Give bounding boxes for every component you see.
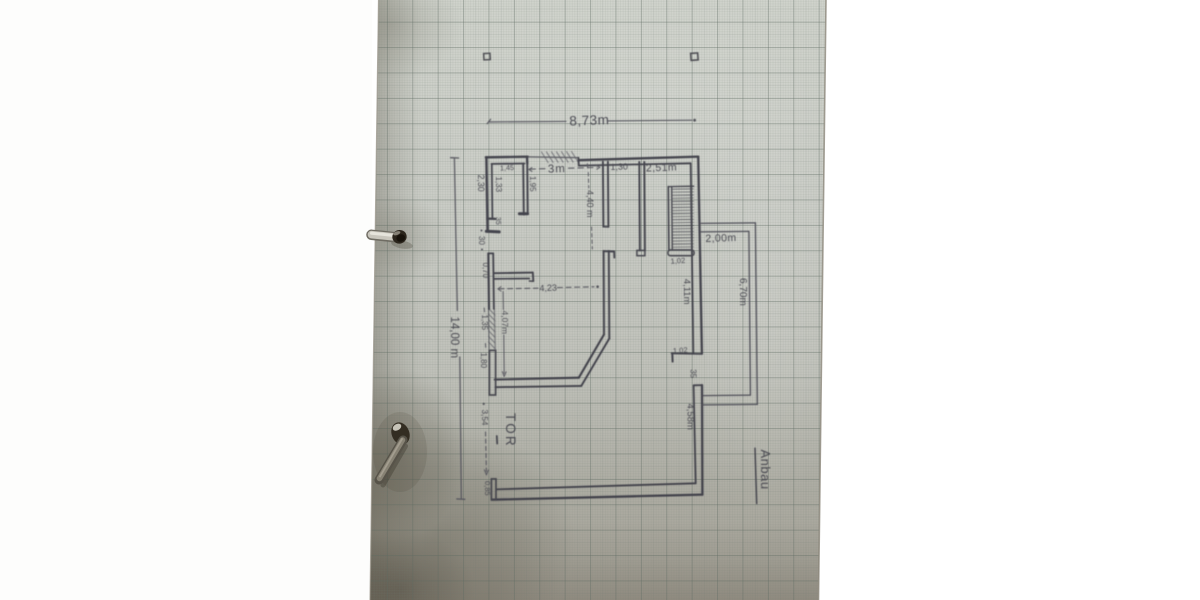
svg-text:6,70m: 6,70m [737,278,748,306]
svg-text:35: 35 [689,369,698,378]
svg-text:1,35: 1,35 [480,315,489,331]
svg-text:14,00 m: 14,00 m [448,317,460,359]
svg-text:1,02: 1,02 [670,256,685,266]
svg-text:1,02: 1,02 [673,345,688,355]
svg-text:1,95: 1,95 [528,176,537,192]
svg-text:4,07m: 4,07m [500,311,510,335]
svg-text:2,00m: 2,00m [705,232,737,245]
svg-text:0,85: 0,85 [483,481,492,496]
svg-text:4,11m: 4,11m [681,279,692,305]
svg-text:8,73m: 8,73m [569,112,610,128]
svg-text:30: 30 [477,236,486,245]
svg-text:Anbau: Anbau [758,450,773,490]
svg-text:35: 35 [494,217,501,225]
svg-text:4,58m: 4,58m [685,404,696,430]
svg-text:1,80: 1,80 [479,353,488,369]
svg-text:0,70: 0,70 [481,263,490,279]
svg-text:1,30: 1,30 [610,161,628,172]
svg-text:2,30: 2,30 [476,175,486,192]
svg-text:3,54: 3,54 [480,410,489,426]
svg-text:4,23: 4,23 [539,283,557,294]
svg-text:3m: 3m [548,163,566,176]
svg-text:1,45: 1,45 [500,163,514,173]
svg-text:4,40 m: 4,40 m [585,190,595,218]
svg-text:2,51m: 2,51m [646,161,678,174]
svg-text:1,33: 1,33 [494,177,503,193]
svg-text:TOR: TOR [503,413,518,448]
